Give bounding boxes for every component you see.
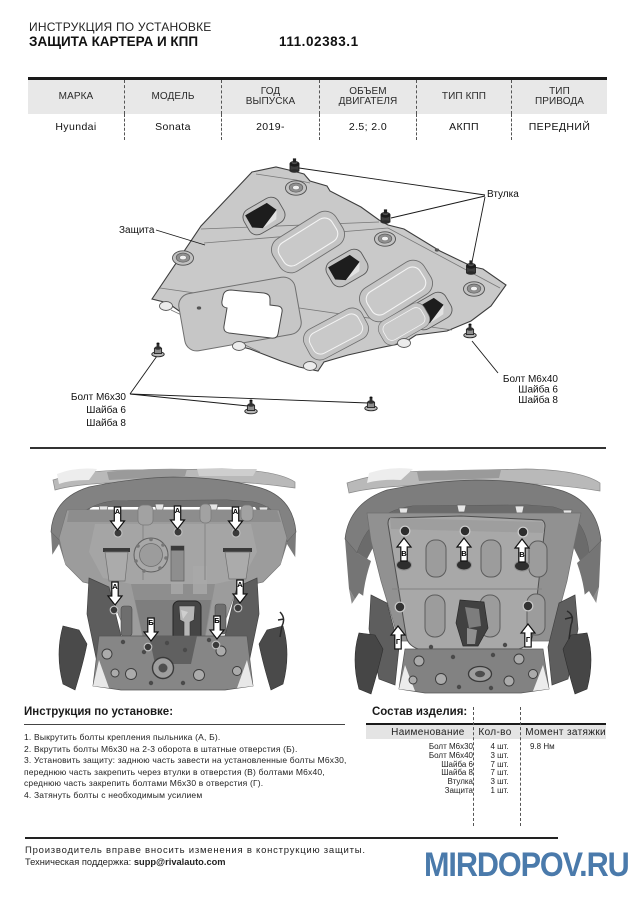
svg-text:В: В bbox=[461, 549, 467, 558]
svg-text:Г: Г bbox=[396, 637, 401, 646]
svg-text:А: А bbox=[175, 506, 181, 515]
svg-text:А: А bbox=[233, 507, 239, 516]
svg-text:А: А bbox=[115, 507, 121, 516]
svg-text:Шайба 8: Шайба 8 bbox=[86, 417, 126, 429]
svg-text:Шайба 6: Шайба 6 bbox=[86, 404, 126, 416]
svg-text:В: В bbox=[401, 549, 407, 558]
svg-text:Втулка: Втулка bbox=[487, 189, 519, 200]
svg-text:Болт М6х40: Болт М6х40 bbox=[503, 374, 559, 385]
svg-text:Болт М6х30: Болт М6х30 bbox=[71, 392, 127, 403]
svg-text:В: В bbox=[519, 550, 525, 559]
svg-text:Шайба 6: Шайба 6 bbox=[518, 384, 558, 396]
svg-text:Б: Б bbox=[148, 618, 154, 627]
svg-text:Защита: Защита bbox=[119, 225, 155, 236]
svg-text:А: А bbox=[112, 582, 118, 591]
svg-text:Г: Г bbox=[526, 635, 531, 644]
svg-text:Б: Б bbox=[214, 616, 220, 625]
svg-text:А: А bbox=[237, 580, 243, 589]
svg-text:Шайба 8: Шайба 8 bbox=[518, 394, 558, 406]
